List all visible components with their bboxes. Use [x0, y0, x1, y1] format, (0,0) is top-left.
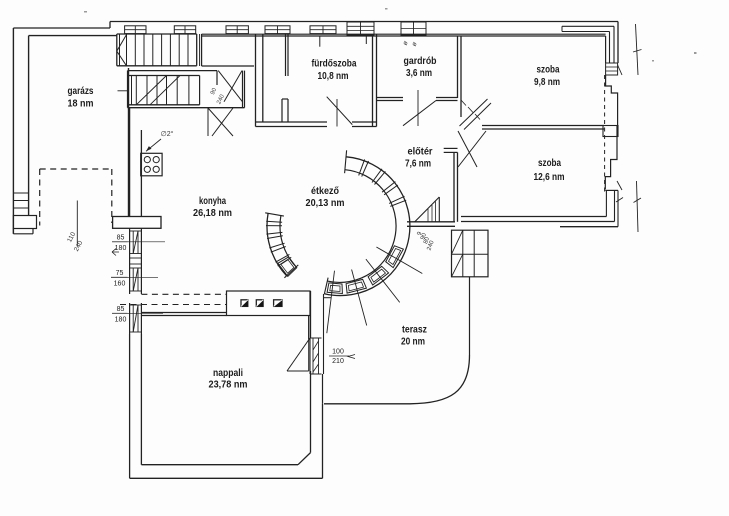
svg-text:szoba: szoba	[537, 64, 560, 76]
svg-text:18 nm: 18 nm	[68, 98, 94, 110]
svg-text:szoba: szoba	[538, 157, 561, 169]
svg-text:∅2°: ∅2°	[161, 130, 174, 138]
svg-text:110: 110	[66, 231, 77, 244]
svg-text:90: 90	[210, 87, 219, 96]
svg-text:12,6 nm: 12,6 nm	[534, 171, 565, 183]
svg-text:konyha: konyha	[199, 195, 226, 207]
svg-text:100: 100	[332, 349, 344, 356]
svg-text:20 nm: 20 nm	[401, 336, 425, 348]
svg-text:garázs: garázs	[68, 85, 94, 97]
svg-text:240: 240	[216, 93, 226, 105]
svg-text:terasz: terasz	[402, 323, 427, 335]
svg-text:180: 180	[115, 245, 127, 252]
svg-text:26,18 nm: 26,18 nm	[193, 207, 232, 219]
svg-text:160: 160	[114, 281, 126, 288]
svg-text:előtér: előtér	[408, 146, 433, 158]
svg-text:ø: ø	[411, 41, 419, 48]
svg-text:75: 75	[116, 270, 124, 277]
svg-text:240: 240	[73, 240, 84, 253]
svg-text:10,8 nm: 10,8 nm	[318, 70, 349, 82]
svg-text:20,13 nm: 20,13 nm	[306, 197, 345, 209]
svg-text:9,8 nm: 9,8 nm	[534, 76, 560, 88]
svg-text:180: 180	[115, 317, 127, 324]
svg-text:210: 210	[332, 358, 344, 365]
svg-text:7,6 nm: 7,6 nm	[405, 157, 431, 169]
svg-text:23,78 nm: 23,78 nm	[209, 378, 248, 390]
svg-text:étkező: étkező	[311, 185, 339, 197]
svg-text:nappali: nappali	[213, 367, 243, 379]
svg-text:gardrób: gardrób	[404, 55, 437, 67]
svg-text:85: 85	[117, 306, 125, 313]
svg-text:85: 85	[117, 235, 125, 242]
svg-text:fürdőszoba: fürdőszoba	[312, 58, 357, 70]
svg-text:3,6 nm: 3,6 nm	[406, 67, 432, 79]
svg-text:ø: ø	[402, 40, 410, 47]
